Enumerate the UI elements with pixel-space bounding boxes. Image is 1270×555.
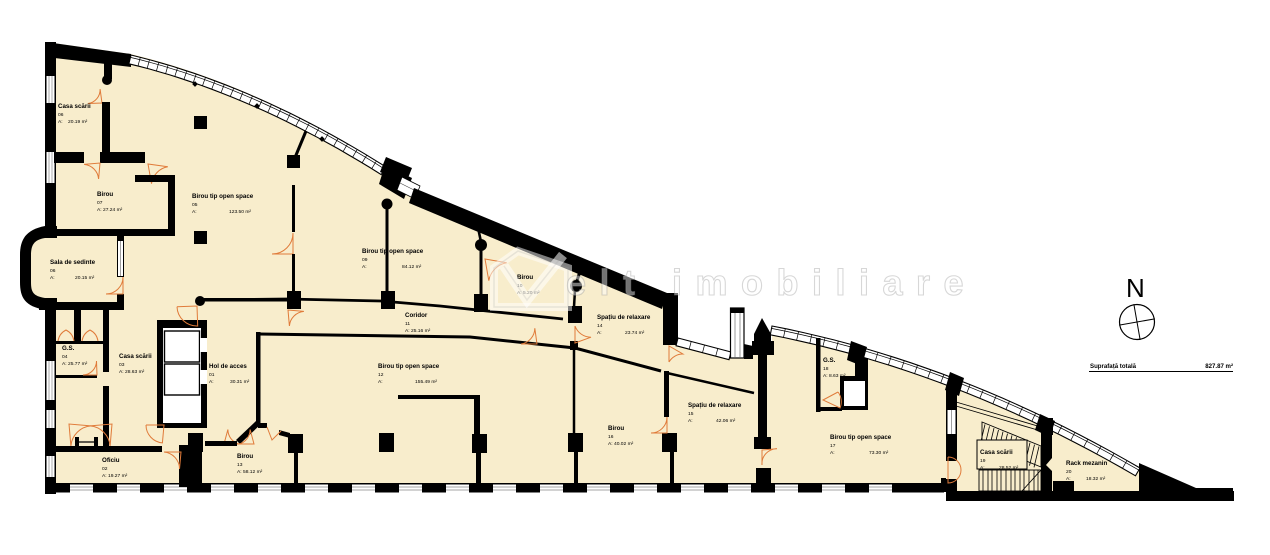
svg-text:20: 20 [1066, 469, 1072, 475]
svg-text:A:: A: [378, 379, 383, 385]
svg-text:A: 28.63 m²: A: 28.63 m² [119, 369, 145, 375]
svg-text:12: 12 [378, 372, 384, 378]
svg-text:15: 15 [688, 411, 694, 417]
svg-text:16: 16 [608, 434, 614, 440]
svg-text:Birou tip open space: Birou tip open space [362, 248, 424, 255]
svg-text:Sala de sedinte: Sala de sedinte [50, 259, 96, 266]
svg-text:73.30 m²: 73.30 m² [869, 450, 889, 456]
svg-text:Birou tip open space: Birou tip open space [192, 193, 254, 200]
svg-text:A:: A: [1066, 476, 1071, 482]
svg-text:20.19 m²: 20.19 m² [68, 119, 88, 125]
svg-text:827.87 m²: 827.87 m² [1205, 363, 1233, 370]
svg-text:Birou tip open space: Birou tip open space [830, 434, 892, 441]
svg-text:Rack mezanin: Rack mezanin [1066, 460, 1107, 467]
svg-text:Casa scării: Casa scării [58, 103, 91, 110]
svg-text:05: 05 [192, 202, 198, 208]
svg-text:A:: A: [980, 465, 985, 471]
svg-text:123.50 m²: 123.50 m² [229, 209, 251, 215]
svg-text:A:: A: [688, 418, 693, 424]
svg-text:Casa scării: Casa scării [980, 449, 1013, 456]
svg-text:23.74 m²: 23.74 m² [625, 330, 645, 336]
svg-text:A: 19.27 m²: A: 19.27 m² [102, 473, 128, 479]
svg-text:A:: A: [50, 275, 55, 281]
svg-text:A:: A: [830, 450, 835, 456]
svg-text:G.S.: G.S. [823, 357, 836, 364]
svg-text:20.15 m²: 20.15 m² [75, 275, 95, 281]
svg-text:19: 19 [980, 458, 986, 464]
svg-text:18: 18 [823, 366, 829, 372]
svg-text:Birou: Birou [97, 191, 113, 198]
svg-text:06: 06 [58, 112, 64, 118]
svg-text:02: 02 [102, 466, 108, 472]
svg-text:elt imobiliare: elt imobiliare [566, 262, 977, 303]
svg-text:A: 27.24 m²: A: 27.24 m² [97, 207, 123, 213]
svg-text:84.12 m²: 84.12 m² [402, 264, 422, 270]
svg-text:Birou: Birou [237, 453, 253, 460]
svg-text:A: 25.77 m²: A: 25.77 m² [62, 361, 88, 367]
svg-text:Spațiu de relaxare: Spațiu de relaxare [597, 314, 651, 321]
svg-text:07: 07 [97, 200, 103, 206]
svg-text:A:: A: [58, 119, 63, 125]
svg-text:A:: A: [597, 330, 602, 336]
svg-text:A: 8.63 m²: A: 8.63 m² [823, 373, 846, 379]
svg-text:Spațiu de relaxare: Spațiu de relaxare [688, 402, 742, 409]
svg-text:Coridor: Coridor [405, 312, 428, 319]
svg-text:Suprafață totală: Suprafață totală [1090, 363, 1137, 370]
svg-text:Casa scării: Casa scării [119, 353, 152, 360]
svg-text:01: 01 [209, 372, 215, 378]
svg-text:G.S.: G.S. [62, 345, 75, 352]
svg-text:14: 14 [597, 323, 603, 329]
svg-text:04: 04 [62, 354, 68, 360]
svg-text:06: 06 [50, 268, 56, 274]
svg-text:N: N [1126, 273, 1145, 303]
svg-text:A:: A: [209, 379, 214, 385]
svg-text:13: 13 [237, 462, 243, 468]
svg-text:30.31 m²: 30.31 m² [230, 379, 250, 385]
svg-text:28.52 m²: 28.52 m² [999, 465, 1019, 471]
svg-text:17: 17 [830, 443, 836, 449]
svg-text:Birou: Birou [608, 425, 624, 432]
svg-text:A:: A: [192, 209, 197, 215]
svg-text:A: 58.12 m²: A: 58.12 m² [237, 469, 263, 475]
svg-text:11: 11 [405, 321, 410, 327]
svg-text:A: 40.02 m²: A: 40.02 m² [608, 441, 634, 447]
svg-text:A:: A: [362, 264, 367, 270]
svg-text:Oficiu: Oficiu [102, 457, 120, 464]
svg-text:18.32 m²: 18.32 m² [1086, 476, 1106, 482]
svg-text:03: 03 [119, 362, 125, 368]
svg-text:Birou tip open space: Birou tip open space [378, 363, 440, 370]
svg-text:Hol de acces: Hol de acces [209, 363, 247, 370]
svg-text:A: 25.16 m²: A: 25.16 m² [405, 328, 431, 334]
svg-text:09: 09 [362, 257, 368, 263]
svg-text:155.49 m²: 155.49 m² [415, 379, 437, 385]
svg-text:42.06 m²: 42.06 m² [716, 418, 736, 424]
